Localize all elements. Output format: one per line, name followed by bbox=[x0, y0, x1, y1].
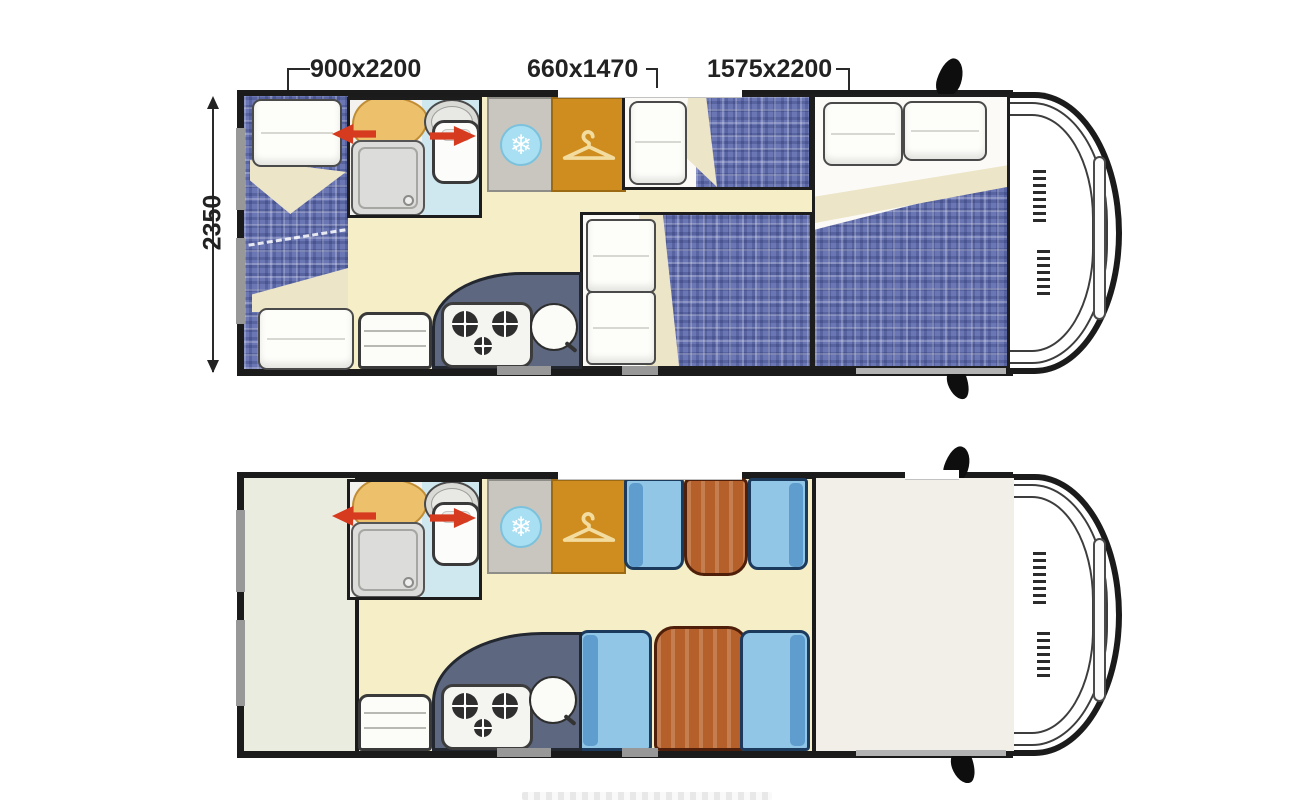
cropped-artifact bbox=[522, 792, 772, 800]
cab-front bbox=[1007, 474, 1122, 756]
dim-label-bed-left: 900x2200 bbox=[310, 55, 421, 84]
window-opening bbox=[856, 750, 1006, 756]
wardrobe bbox=[551, 97, 626, 192]
shower-tray bbox=[351, 140, 425, 216]
kitchen-sink bbox=[530, 303, 578, 351]
bed-cushion bbox=[258, 308, 354, 370]
entry-step bbox=[358, 694, 432, 751]
leader-line bbox=[287, 68, 310, 70]
window-opening bbox=[236, 620, 245, 706]
dinette-seat bbox=[624, 478, 684, 570]
window-opening bbox=[497, 748, 551, 757]
roof-opening bbox=[905, 470, 959, 480]
hood-vent bbox=[1033, 170, 1046, 222]
width-dim-arrow bbox=[207, 360, 219, 373]
snowflake-icon: ❄ bbox=[500, 124, 542, 166]
seat-backrest bbox=[583, 635, 598, 746]
bed-pillow bbox=[629, 101, 687, 185]
entry-step bbox=[358, 312, 432, 369]
hood-vent bbox=[1033, 552, 1046, 604]
wardrobe bbox=[551, 479, 626, 574]
dinette-seat bbox=[740, 630, 810, 751]
stove-burner bbox=[492, 311, 518, 337]
motorhome-floorplan-image: 900x2200 660x1470 1575x2200 2350 bbox=[0, 0, 1300, 800]
bed-pillow bbox=[823, 102, 903, 166]
fridge: ❄ bbox=[487, 479, 555, 574]
window-opening bbox=[622, 748, 658, 757]
roof-opening bbox=[558, 88, 742, 98]
bathroom bbox=[347, 97, 482, 218]
front-bumper bbox=[1093, 538, 1106, 702]
seat-backrest bbox=[790, 635, 805, 746]
shower-drain bbox=[403, 577, 414, 588]
stove-burner bbox=[452, 693, 478, 719]
stove-burner bbox=[492, 693, 518, 719]
stove bbox=[441, 302, 533, 368]
shower-tray bbox=[351, 522, 425, 598]
fridge: ❄ bbox=[487, 97, 555, 192]
hood-vent bbox=[1037, 632, 1050, 680]
hanger-icon bbox=[561, 510, 617, 544]
bunk-bed-upper bbox=[622, 94, 812, 190]
night-layout-plan: 900x2200 660x1470 1575x2200 2350 bbox=[180, 40, 1150, 400]
dim-label-body-width: 2350 bbox=[199, 188, 228, 258]
dinette-table bbox=[684, 478, 748, 576]
day-layout-plan: ❄ bbox=[180, 422, 1150, 782]
window-opening bbox=[236, 510, 245, 592]
bed-pillow bbox=[252, 99, 342, 167]
window-opening bbox=[497, 366, 551, 375]
shower-drain bbox=[403, 195, 414, 206]
seat-backrest bbox=[629, 483, 643, 567]
dim-label-bed-middle: 660x1470 bbox=[527, 55, 638, 84]
window-opening bbox=[856, 368, 1006, 374]
dinette-table bbox=[654, 626, 748, 751]
dinette-seat bbox=[748, 478, 808, 570]
snowflake-icon: ❄ bbox=[500, 506, 542, 548]
dinette-bed bbox=[580, 212, 813, 369]
stove-burner bbox=[474, 719, 492, 737]
window-opening bbox=[236, 238, 245, 324]
dim-label-bed-overcab: 1575x2200 bbox=[707, 55, 832, 84]
window-opening bbox=[622, 366, 658, 375]
stove bbox=[441, 684, 533, 750]
overcab-bed bbox=[812, 94, 1010, 369]
front-bumper bbox=[1093, 156, 1106, 320]
stove-burner bbox=[452, 311, 478, 337]
bed-pillow bbox=[586, 219, 656, 293]
dinette-seat bbox=[578, 630, 652, 751]
cab-front bbox=[1007, 92, 1122, 374]
bed-pillow bbox=[586, 291, 656, 365]
hood-vent bbox=[1037, 250, 1050, 298]
overcab-bed-stowed-area bbox=[812, 478, 1014, 751]
stove-burner bbox=[474, 337, 492, 355]
width-dim-arrow bbox=[207, 96, 219, 109]
hanger-icon bbox=[561, 128, 617, 162]
seat-backrest bbox=[789, 483, 803, 567]
window-opening bbox=[236, 128, 245, 210]
bed-pillow bbox=[903, 101, 987, 161]
roof-opening bbox=[558, 470, 742, 480]
bathroom bbox=[347, 479, 482, 600]
kitchen-sink bbox=[529, 676, 577, 724]
